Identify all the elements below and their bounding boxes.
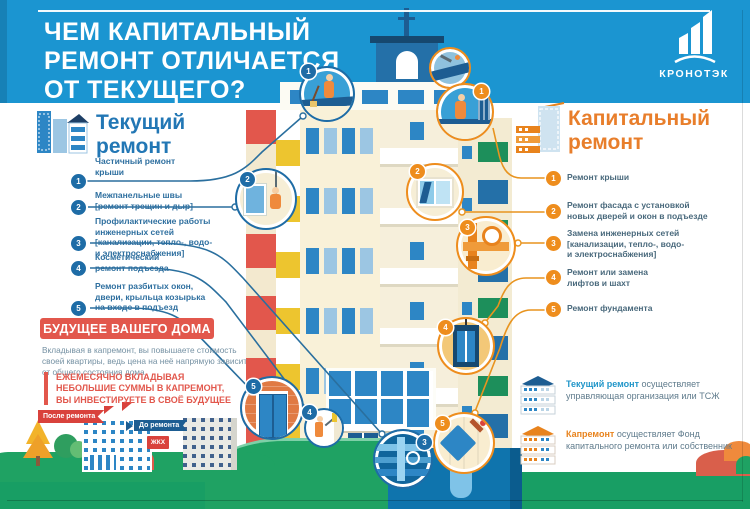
pipe-vertical — [397, 437, 405, 481]
roof-flag-1 — [104, 406, 114, 414]
highlight-bar — [44, 372, 48, 405]
door-right — [273, 394, 287, 438]
green-bush-right — [736, 456, 750, 474]
legend-capital-highlight: Капремонт — [566, 429, 614, 439]
list-badge: 1 — [546, 171, 561, 186]
valve — [482, 226, 502, 246]
frame-line-top — [38, 10, 710, 12]
brand-logo: КРОНОТЭК — [645, 4, 743, 96]
current-item-text: Косметический ремонт подъезда — [95, 252, 230, 273]
bolt — [455, 55, 460, 60]
roof-deck — [438, 123, 492, 139]
left-edge-shade — [0, 0, 7, 103]
legend-current-highlight: Текущий ремонт — [566, 379, 639, 389]
tree-trunk — [36, 456, 40, 466]
capital-item-text: Замена инженерных сетей [канализации, те… — [567, 228, 732, 260]
current-item-text: Ремонт разбитых окон, двери, крыльца коз… — [95, 281, 230, 313]
future-banner: БУДУЩЕЕ ВАШЕГО ДОМА — [40, 318, 214, 339]
logo-bars-icon — [645, 4, 743, 66]
worker-body — [455, 101, 466, 119]
window — [244, 184, 266, 215]
callout-badge: 2 — [410, 164, 425, 179]
list-badge: 2 — [71, 200, 86, 215]
list-badge: 3 — [546, 236, 561, 251]
current-item-text: Межпанельные швы [ремонт трещин и дыр] — [95, 190, 230, 211]
capital-item-text: Ремонт фундамента — [567, 303, 732, 314]
handle-tip — [480, 420, 486, 426]
worker-head — [458, 94, 465, 101]
list-badge: 3 — [71, 236, 86, 251]
paint-roller — [332, 413, 337, 422]
broom-head — [310, 101, 317, 107]
window-pane-right — [436, 181, 450, 204]
legend-current-text: Текущий ремонт осуществляет управляющая … — [566, 379, 738, 402]
capital-item-text: Ремонт фасада с установкой новых дверей … — [567, 200, 732, 221]
roof-sheet — [429, 62, 471, 83]
capital-item-text: Ремонт крыши — [567, 172, 732, 183]
list-badge: 2 — [546, 204, 561, 219]
frame-line-bottom — [7, 500, 743, 501]
list-badge: 4 — [546, 270, 561, 285]
after-repair-flag: После ремонта — [38, 410, 104, 423]
callout-badge: 5 — [246, 379, 261, 394]
worker-head — [326, 74, 333, 81]
capital-item-text: Ремонт или замена лифтов и шахт — [567, 267, 732, 288]
list-badge: 5 — [71, 301, 86, 316]
current-repair-icon — [33, 105, 91, 157]
legend-capital-text: Капремонт осуществляет Фонд капитального… — [566, 429, 738, 452]
penthouse-arch-window — [396, 51, 418, 79]
brand-name: КРОНОТЭК — [645, 68, 743, 80]
callout-badge: 2 — [240, 172, 255, 187]
current-item-text: Частичный ремонт крыши — [95, 156, 230, 177]
current-repair-heading: Текущий ремонт — [96, 111, 185, 158]
callout-badge: 1 — [474, 84, 489, 99]
legend-current-icon — [516, 374, 560, 416]
roof-deck — [299, 106, 355, 122]
future-highlight: ЕЖЕМЕСЯЧНО ВКЛАДЫВАЯ НЕБОЛЬШИЕ СУММЫ В К… — [56, 372, 246, 406]
list-badge: 1 — [71, 174, 86, 189]
valve — [406, 451, 420, 465]
worker-body — [315, 422, 323, 437]
list-badge: 4 — [71, 261, 86, 276]
infographic-poster: ЧЕМ КАПИТАЛЬНЫЙ РЕМОНТ ОТЛИЧАЕТСЯ ОТ ТЕК… — [0, 0, 750, 509]
hammer — [440, 54, 452, 62]
right-wing — [458, 118, 512, 460]
callout-badge: 4 — [302, 405, 317, 420]
zhkh-sign: ЖКХ — [147, 436, 169, 449]
frame-line-right — [742, 10, 743, 502]
before-repair-flag: До ремонта — [134, 420, 187, 431]
capital-repair-heading: Капитальный ремонт — [568, 107, 710, 154]
old-building — [183, 418, 237, 470]
door-left — [259, 394, 273, 438]
worker-body — [270, 194, 281, 209]
autumn-tree-bottom — [23, 434, 53, 458]
callout-badge: 3 — [417, 435, 432, 450]
callout-badge: 3 — [460, 220, 475, 235]
callout-badge: 5 — [435, 416, 450, 431]
antenna-crossbar — [398, 17, 415, 20]
worker-body — [324, 81, 334, 98]
renovated-building-entrance — [90, 455, 116, 470]
callout-badge: 1 — [301, 64, 316, 79]
legend-capital-icon — [516, 424, 560, 466]
door-split — [465, 331, 467, 362]
before-arrow — [126, 421, 133, 431]
pipe-joint — [466, 256, 479, 261]
worker-head — [317, 416, 323, 422]
worker-head — [272, 187, 279, 194]
callout-badge: 4 — [438, 320, 453, 335]
list-badge: 5 — [546, 302, 561, 317]
capital-repair-icon — [512, 100, 570, 156]
